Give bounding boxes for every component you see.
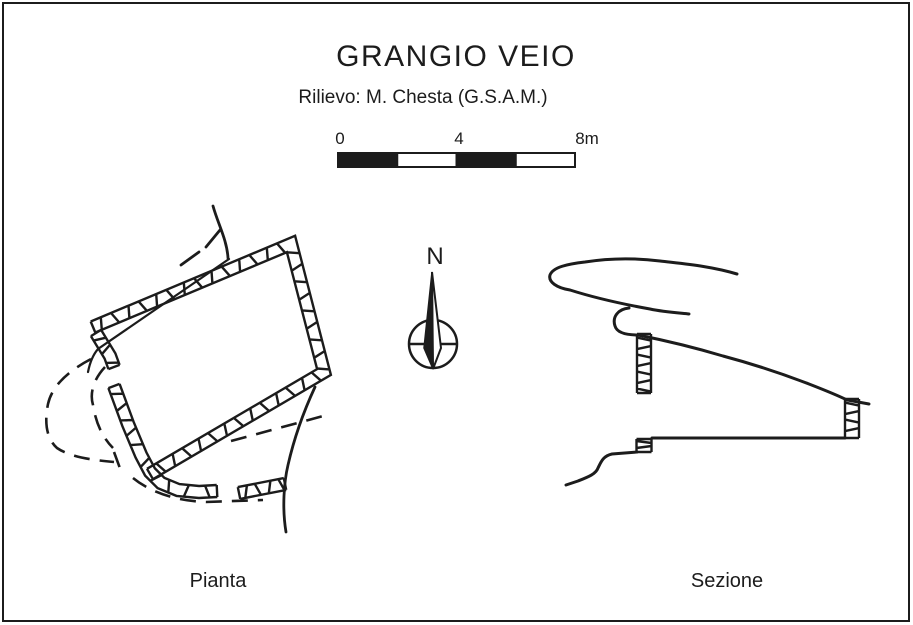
north-label: N	[426, 245, 443, 269]
masonry-wall	[108, 384, 217, 498]
scale-tick-8m: 8m	[575, 130, 599, 147]
plan-masonry-walls	[91, 236, 331, 499]
masonry-wall	[238, 478, 286, 499]
survey-sheet: GRANGIO VEIO Rilievo: M. Chesta (G.S.A.M…	[0, 0, 913, 625]
plan-drawing	[46, 206, 331, 532]
masonry-wall	[91, 330, 120, 369]
section-drawing	[550, 259, 869, 485]
masonry-wall	[637, 334, 651, 393]
survey-credit: Rilievo: M. Chesta (G.S.A.M.)	[298, 88, 547, 107]
north-arrow-icon	[409, 272, 457, 369]
scale-tick-4: 4	[454, 130, 463, 147]
section-rock-lines	[550, 259, 869, 485]
scale-tick-0: 0	[335, 130, 344, 147]
plan-label: Pianta	[190, 571, 247, 591]
masonry-wall	[845, 399, 859, 438]
masonry-wall	[637, 439, 652, 452]
section-label: Sezione	[691, 571, 763, 591]
scale-bar	[338, 153, 575, 167]
section-masonry-walls	[637, 334, 860, 452]
page-title: GRANGIO VEIO	[336, 42, 576, 72]
